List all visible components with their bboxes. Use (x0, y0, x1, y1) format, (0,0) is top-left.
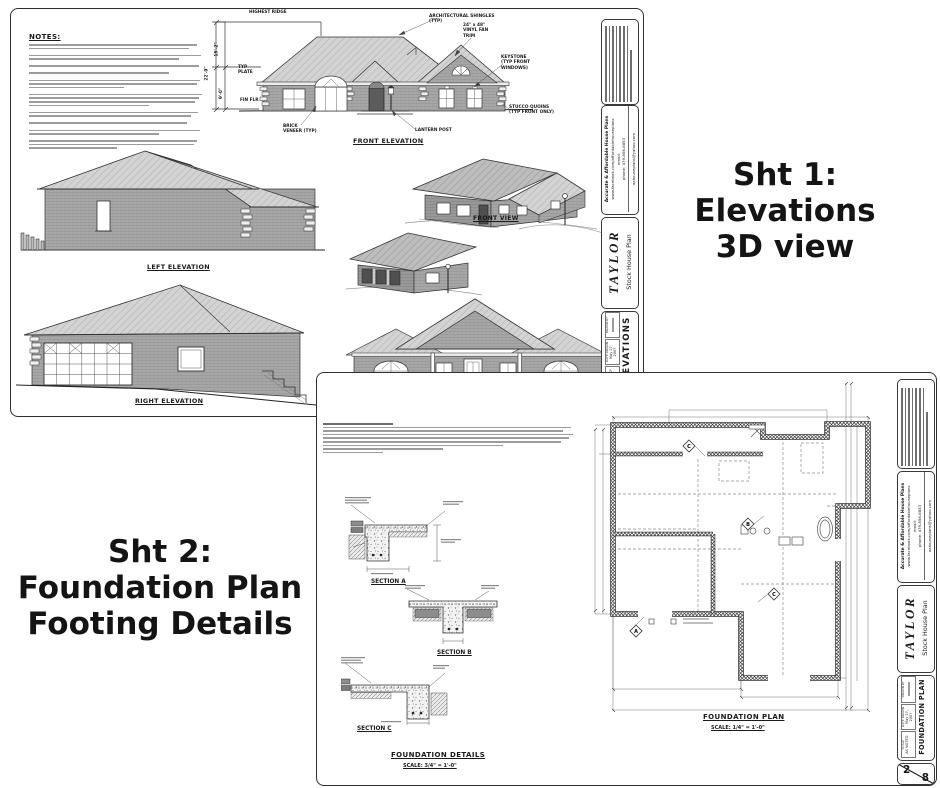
contact-box: Accurate & Affordable House Plans www.fa… (897, 471, 935, 583)
company-phone: phone: 479-856-6853 (918, 472, 922, 580)
sheet-total: 8 (922, 772, 929, 784)
plan-interior-lines (613, 437, 838, 678)
plan-name: Stock House Plan (921, 586, 929, 670)
footing-notes-block (323, 421, 575, 453)
dim-overall: 22'-9" (205, 66, 210, 80)
front-elevation-title: FRONT ELEVATION (353, 137, 423, 145)
section-a-drawing (345, 497, 469, 577)
titleblock-fields: SCALEAS NOTED DATE DRAWNMay 27, 2007 DRA… (901, 676, 916, 758)
contact-box: Accurate & Affordable House Plans www.fa… (601, 105, 639, 215)
svg-text:C: C (772, 592, 776, 598)
front-view-3d-drawing (399, 149, 603, 237)
sheet-title: FOUNDATION PLAN (918, 676, 926, 758)
section-markers: C B C A (630, 440, 780, 637)
company-email: aahouseplans@yahoo.com (628, 106, 635, 212)
plan-name: Stock House Plan (625, 218, 633, 306)
fan-trim-callout: 24" x 48"VINYL FANTRIM (463, 23, 488, 39)
panel-box: SCALEAS NOTED DATE DRAWNMay 27, 2007 DRA… (897, 675, 935, 761)
sheet1-elevations: NOTES: (10, 8, 644, 417)
brand-name: TAYLOR (606, 218, 622, 306)
sheet2-foundation: C B C A SECTION A SECTION B SECTION C FO… (316, 372, 937, 786)
disclaimer-box (897, 379, 935, 469)
perspective-view-drawing (342, 225, 484, 303)
stucco-quoins-callout: STUCCO QUOINS(TYP FRONT ONLY) (509, 105, 554, 116)
brand-name: TAYLOR (902, 586, 918, 670)
svg-text:A: A (634, 629, 638, 635)
right-elevation-title: RIGHT ELEVATION (135, 397, 203, 405)
svg-text:C: C (687, 444, 691, 450)
notes-heading: NOTES: (29, 33, 209, 41)
front-view-title: FRONT VIEW (473, 215, 519, 222)
company-phone: phone: 479-856-6853 (622, 106, 626, 212)
titleblock-strip-2: Accurate & Affordable House Plans www.fa… (897, 375, 935, 783)
left-elevation-title: LEFT ELEVATION (147, 263, 210, 271)
sheet-number-box: 2 8 (897, 763, 935, 785)
keystone-callout: KEYSTONE(TYP FRONTWINDOWS) (501, 55, 530, 71)
sheet-number: 2 (903, 764, 910, 776)
typ-plate-callout: TYPPLATE (238, 65, 253, 76)
right-elevation-drawing (16, 275, 316, 411)
highest-ridge-callout: HIGHEST RIDGE (249, 10, 287, 15)
section-b-drawing (405, 585, 501, 649)
lantern-post-callout: LANTERN POST (415, 128, 452, 133)
section-c-title: SECTION C (357, 726, 392, 732)
sheet1-annotation-label: Sht 1: Elevations 3D view (655, 157, 915, 265)
foundation-details-scale: SCALE: 3/4" = 1'-0" (403, 763, 457, 769)
screenshot-stage: NOTES: (0, 0, 940, 788)
foundation-plan-drawing: C B C A (583, 379, 905, 719)
fin-flr-callout: FIN FLR (240, 98, 259, 103)
brand-box: TAYLOR Stock House Plan (897, 585, 935, 673)
dim-lower: 9'-0" (219, 88, 224, 99)
foundation-plan-scale: SCALE: 1/4" = 1'-0" (711, 725, 765, 731)
brick-veneer-callout: BRICKVENEER (TYP) (283, 124, 317, 135)
section-a-title: SECTION A (371, 579, 406, 585)
section-c-drawing (341, 657, 451, 725)
company-email: aahouseplans@yahoo.com (924, 472, 931, 580)
titleblock-strip-1: Accurate & Affordable House Plans www.fa… (601, 11, 639, 414)
svg-text:B: B (746, 522, 750, 528)
brand-box: TAYLOR Stock House Plan (601, 217, 639, 309)
left-elevation-drawing (19, 143, 327, 269)
foundation-details-title: FOUNDATION DETAILS (391, 751, 485, 759)
section-b-title: SECTION B (437, 650, 472, 656)
sheet2-annotation-label: Sht 2: Foundation Plan Footing Details (10, 534, 310, 642)
notes-block: NOTES: (29, 33, 209, 149)
disclaimer-box (601, 19, 639, 105)
foundation-plan-title: FOUNDATION PLAN (703, 713, 784, 721)
dim-upper: 15'-2" (215, 42, 220, 56)
